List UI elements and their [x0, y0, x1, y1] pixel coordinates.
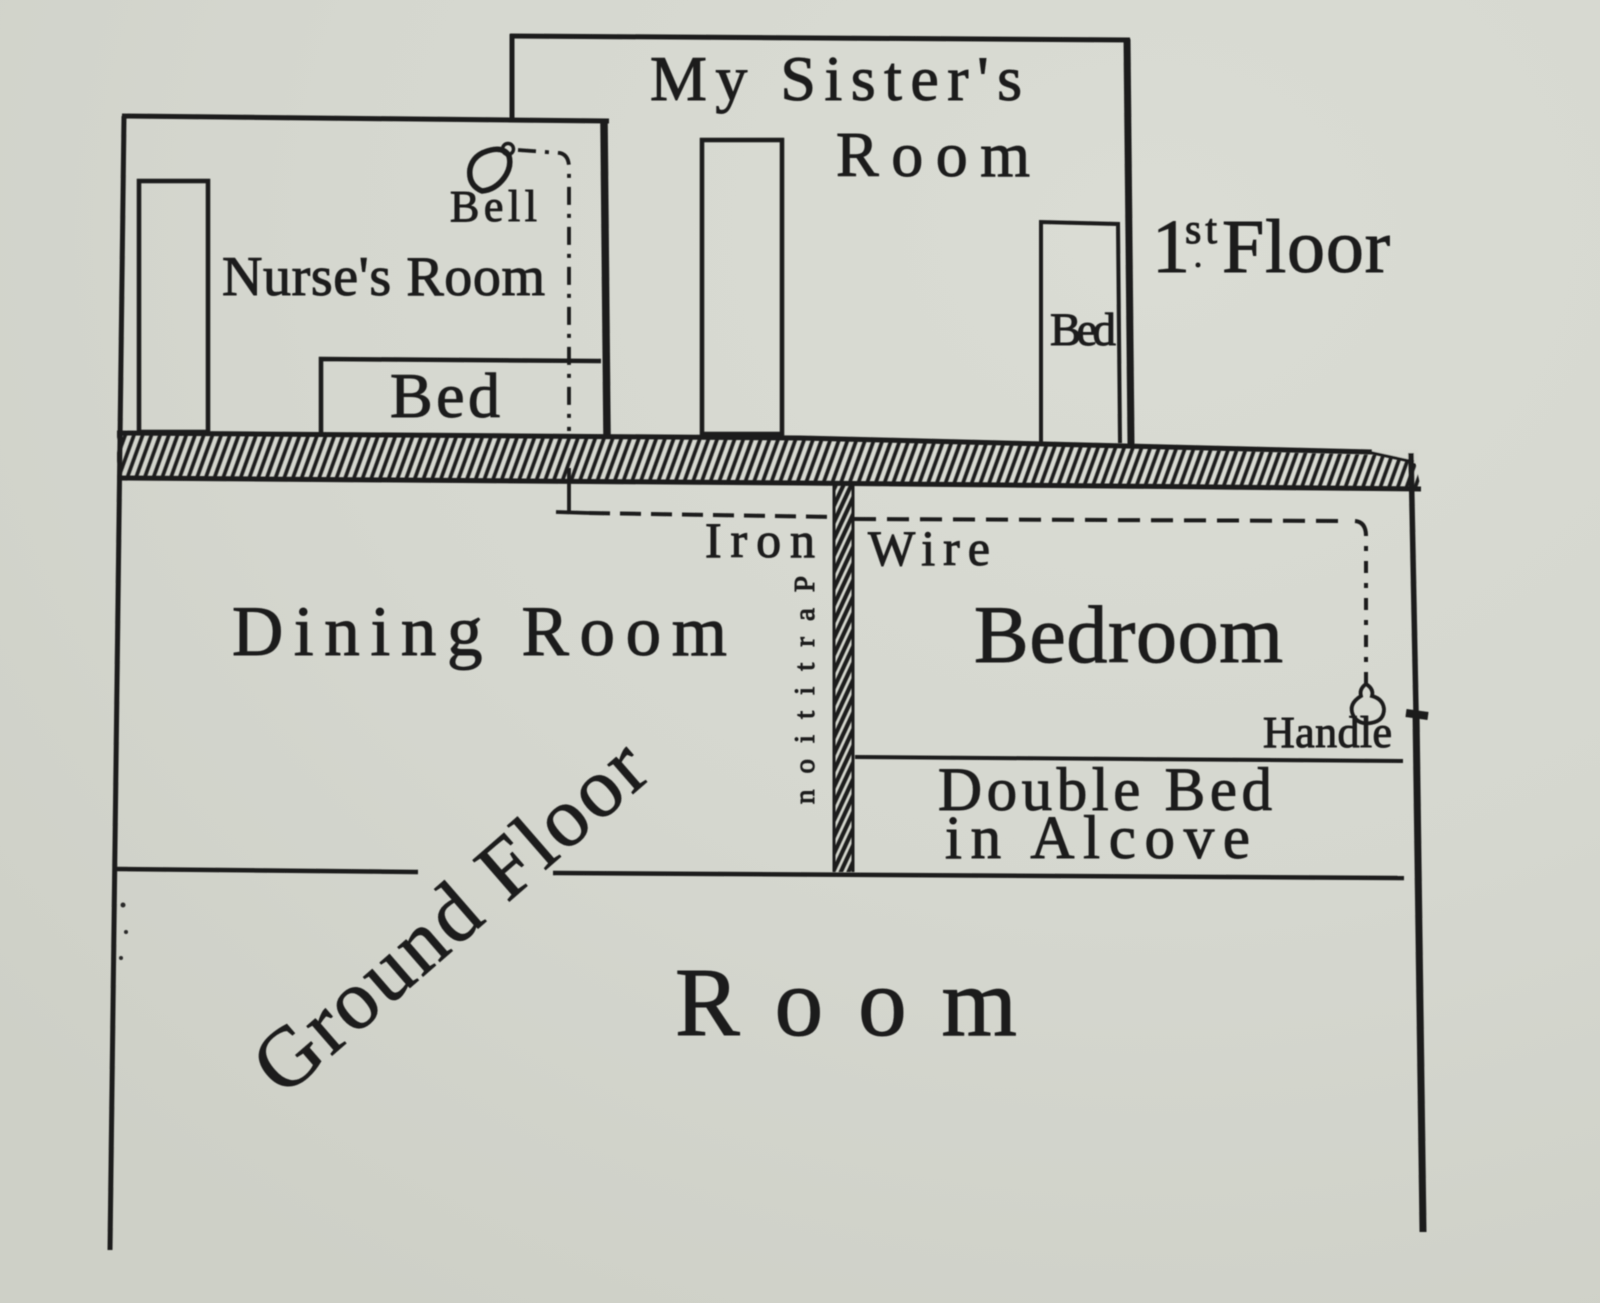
svg-text:Iron: Iron [705, 512, 815, 568]
svg-text:Dining Room: Dining Room [232, 593, 727, 671]
svg-text:My Sister's: My Sister's [650, 43, 1022, 114]
svg-text:Bed: Bed [1050, 304, 1116, 356]
svg-text:Bedroom: Bedroom [974, 589, 1283, 680]
svg-text:in Alcove: in Alcove [945, 805, 1250, 872]
svg-text:noititraP: noititraP [789, 576, 821, 804]
svg-text:st: st [1185, 207, 1217, 253]
svg-text:Nurse's Room: Nurse's Room [222, 246, 545, 308]
svg-text:Wire: Wire [868, 520, 990, 576]
svg-text:Handle: Handle [1263, 708, 1392, 757]
svg-text:Bed: Bed [390, 360, 500, 431]
svg-text:Floor: Floor [1222, 205, 1390, 289]
